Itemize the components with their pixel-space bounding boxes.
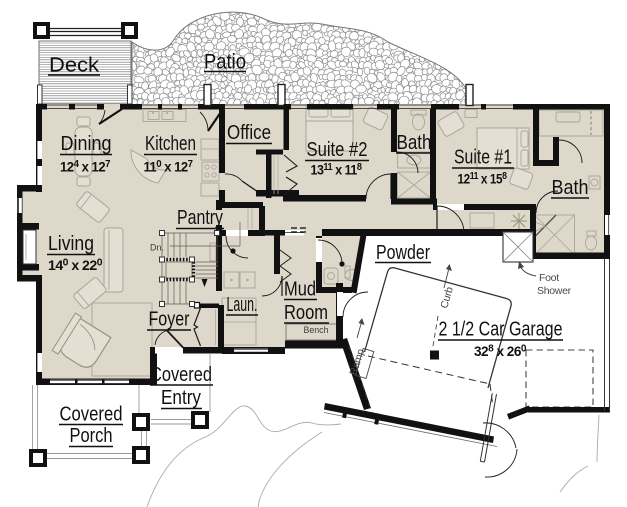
svg-text:Bath: Bath (552, 176, 589, 199)
svg-text:Office: Office (227, 121, 271, 144)
svg-text:Kitchen: Kitchen (145, 132, 196, 155)
svg-text:Entry: Entry (161, 386, 202, 409)
svg-text:Dn.: Dn. (150, 243, 164, 253)
svg-text:Patio: Patio (204, 50, 246, 74)
svg-text:Pantry: Pantry (177, 206, 224, 229)
svg-text:Mud: Mud (284, 278, 316, 301)
svg-text:Covered: Covered (150, 363, 212, 386)
svg-text:1311 x 118: 1311 x 118 (311, 162, 363, 178)
svg-text:Shower: Shower (537, 285, 572, 297)
svg-text:Suite #2: Suite #2 (307, 138, 368, 161)
svg-text:Laun.: Laun. (227, 293, 258, 316)
svg-text:Bench: Bench (304, 325, 329, 335)
svg-text:124 x 127: 124 x 127 (60, 159, 111, 175)
svg-text:Porch: Porch (70, 424, 113, 447)
svg-text:Dining: Dining (61, 132, 112, 155)
svg-text:Bath: Bath (397, 131, 432, 154)
svg-text:110 x 127: 110 x 127 (144, 159, 194, 175)
svg-text:140 x 220: 140 x 220 (48, 258, 103, 274)
svg-text:Foyer: Foyer (149, 308, 190, 331)
svg-text:Foot: Foot (539, 272, 559, 284)
svg-text:2 1/2 Car Garage: 2 1/2 Car Garage (439, 318, 563, 341)
svg-text:328 x 260: 328 x 260 (474, 344, 527, 360)
svg-text:Deck: Deck (49, 55, 100, 77)
svg-text:Suite #1: Suite #1 (454, 146, 512, 169)
svg-text:Living: Living (48, 232, 94, 255)
svg-text:1211 x 158: 1211 x 158 (458, 171, 508, 187)
svg-text:Covered: Covered (60, 403, 123, 426)
svg-text:Powder: Powder (376, 241, 430, 264)
svg-text:Room: Room (284, 301, 328, 324)
